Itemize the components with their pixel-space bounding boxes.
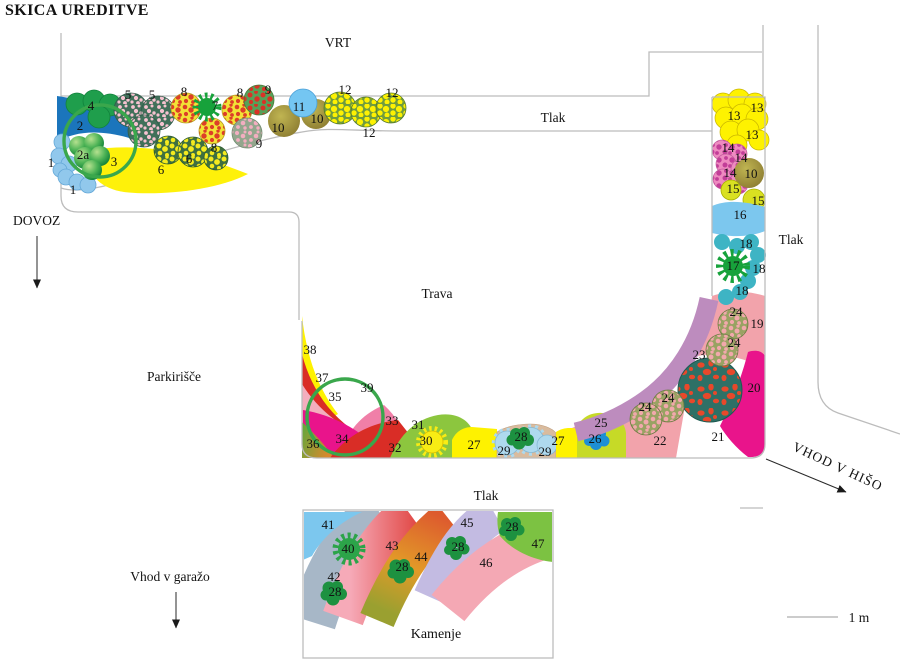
plant-label-36: 36 bbox=[307, 436, 321, 451]
page-title: SKICA UREDITVE bbox=[5, 2, 149, 19]
garden-plan-sketch: SKICA UREDITVE VRT Tlak Tlak Tlak Trava … bbox=[0, 0, 900, 659]
plan-canvas: SKICA UREDITVE VRT Tlak Tlak Tlak Trava … bbox=[0, 0, 900, 659]
plant-label-8: 8 bbox=[211, 140, 218, 155]
plant-label-29: 29 bbox=[498, 443, 511, 458]
plant-label-42: 42 bbox=[328, 569, 341, 584]
plant-label-13: 13 bbox=[751, 100, 764, 115]
plant-label-28: 28 bbox=[396, 559, 409, 574]
scale-label: 1 m bbox=[849, 610, 870, 625]
plant-label-15: 15 bbox=[727, 181, 740, 196]
plant-label-19: 19 bbox=[751, 316, 764, 331]
plant-label-9: 9 bbox=[265, 82, 272, 97]
plant-label-20: 20 bbox=[748, 380, 761, 395]
plant-label-46: 46 bbox=[480, 555, 494, 570]
plant-label-2: 2 bbox=[77, 118, 84, 133]
plant-label-2a: 2a bbox=[77, 147, 90, 162]
plant-label-18: 18 bbox=[736, 283, 749, 298]
plant-label-1: 1 bbox=[48, 155, 55, 170]
plant-label-18: 18 bbox=[753, 261, 766, 276]
plant-label-10: 10 bbox=[745, 166, 758, 181]
plant-label-39: 39 bbox=[361, 380, 374, 395]
plant-label-5: 5 bbox=[149, 87, 156, 102]
plant-label-3: 3 bbox=[111, 154, 118, 169]
area-label-kamenje: Kamenje bbox=[411, 627, 462, 642]
area-label-vhod-v-garazo: Vhod v garažo bbox=[130, 569, 210, 584]
plant-label-24: 24 bbox=[662, 390, 676, 405]
large-shrub-circle bbox=[678, 358, 742, 422]
right-road-boundary bbox=[818, 25, 900, 434]
plant-label-26: 26 bbox=[589, 431, 603, 446]
plant-label-12: 12 bbox=[339, 82, 352, 97]
plant-label-6: 6 bbox=[158, 162, 165, 177]
plant-label-14: 14 bbox=[735, 150, 749, 165]
bed-right-and-bottom bbox=[302, 89, 769, 458]
plant-label-23: 23 bbox=[693, 347, 706, 362]
plant-label-33: 33 bbox=[386, 413, 399, 428]
plant-label-31: 31 bbox=[412, 417, 425, 432]
area-label-parkirisce: Parkirišče bbox=[147, 369, 201, 384]
plant-label-28: 28 bbox=[515, 429, 528, 444]
area-label-tlak-right: Tlak bbox=[779, 232, 804, 247]
plant-label-13: 13 bbox=[728, 108, 741, 123]
plant-label-34: 34 bbox=[336, 431, 350, 446]
plant-label-24: 24 bbox=[730, 304, 744, 319]
plant-label-37: 37 bbox=[316, 370, 330, 385]
plant-label-35: 35 bbox=[329, 389, 342, 404]
plant-label-6: 6 bbox=[186, 151, 193, 166]
plant-label-24: 24 bbox=[728, 335, 742, 350]
area-label-tlak-top: Tlak bbox=[541, 110, 566, 125]
plant-label-17: 17 bbox=[727, 258, 741, 273]
area-label-vhod-v-hiso: VHOD V HIŠO bbox=[790, 439, 885, 494]
plant-label-5: 5 bbox=[125, 87, 132, 102]
plant-label-12: 12 bbox=[386, 85, 399, 100]
plant-label-4: 4 bbox=[88, 98, 95, 113]
area-label-dovoz: DOVOZ bbox=[13, 213, 60, 228]
plant-label-13: 13 bbox=[746, 127, 759, 142]
plant-label-32: 32 bbox=[389, 440, 402, 455]
plant-label-47: 47 bbox=[532, 536, 546, 551]
plant-label-24: 24 bbox=[639, 399, 653, 414]
plant-label-27: 27 bbox=[468, 437, 482, 452]
plant-label-9: 9 bbox=[256, 136, 263, 151]
plant-label-38: 38 bbox=[304, 342, 317, 357]
plant-label-18: 18 bbox=[740, 236, 753, 251]
plant-label-15: 15 bbox=[752, 193, 765, 208]
plant-label-7: 7 bbox=[212, 98, 219, 113]
plant-label-43: 43 bbox=[386, 538, 399, 553]
plant-label-45: 45 bbox=[461, 515, 474, 530]
area-label-vrt: VRT bbox=[325, 35, 352, 50]
plant-label-27: 27 bbox=[552, 433, 566, 448]
plant-label-14: 14 bbox=[722, 140, 736, 155]
plant-label-14: 14 bbox=[724, 165, 738, 180]
area-label-tlak-bottom: Tlak bbox=[474, 488, 499, 503]
plant-label-22: 22 bbox=[654, 433, 667, 448]
plant-label-28: 28 bbox=[329, 584, 342, 599]
plant-label-30: 30 bbox=[420, 433, 433, 448]
plant-label-28: 28 bbox=[452, 539, 465, 554]
top-pavement-boundary bbox=[61, 52, 762, 96]
plant-label-1: 1 bbox=[70, 182, 77, 197]
area-label-trava: Trava bbox=[421, 286, 452, 301]
bed-top-left bbox=[51, 85, 406, 193]
plant-label-28: 28 bbox=[506, 519, 519, 534]
plant-label-8: 8 bbox=[181, 84, 188, 99]
plant-label-29: 29 bbox=[539, 444, 552, 459]
plant-label-10: 10 bbox=[272, 120, 285, 135]
plant-label-12: 12 bbox=[363, 125, 376, 140]
plant-label-21: 21 bbox=[712, 429, 725, 444]
plant-label-10: 10 bbox=[311, 111, 324, 126]
plant-label-16: 16 bbox=[734, 207, 748, 222]
plant-label-40: 40 bbox=[342, 541, 355, 556]
plant-label-25: 25 bbox=[595, 415, 608, 430]
plant-label-41: 41 bbox=[322, 517, 335, 532]
plant-label-44: 44 bbox=[415, 549, 429, 564]
plant-label-8: 8 bbox=[237, 85, 244, 100]
plant-label-11: 11 bbox=[293, 99, 306, 114]
